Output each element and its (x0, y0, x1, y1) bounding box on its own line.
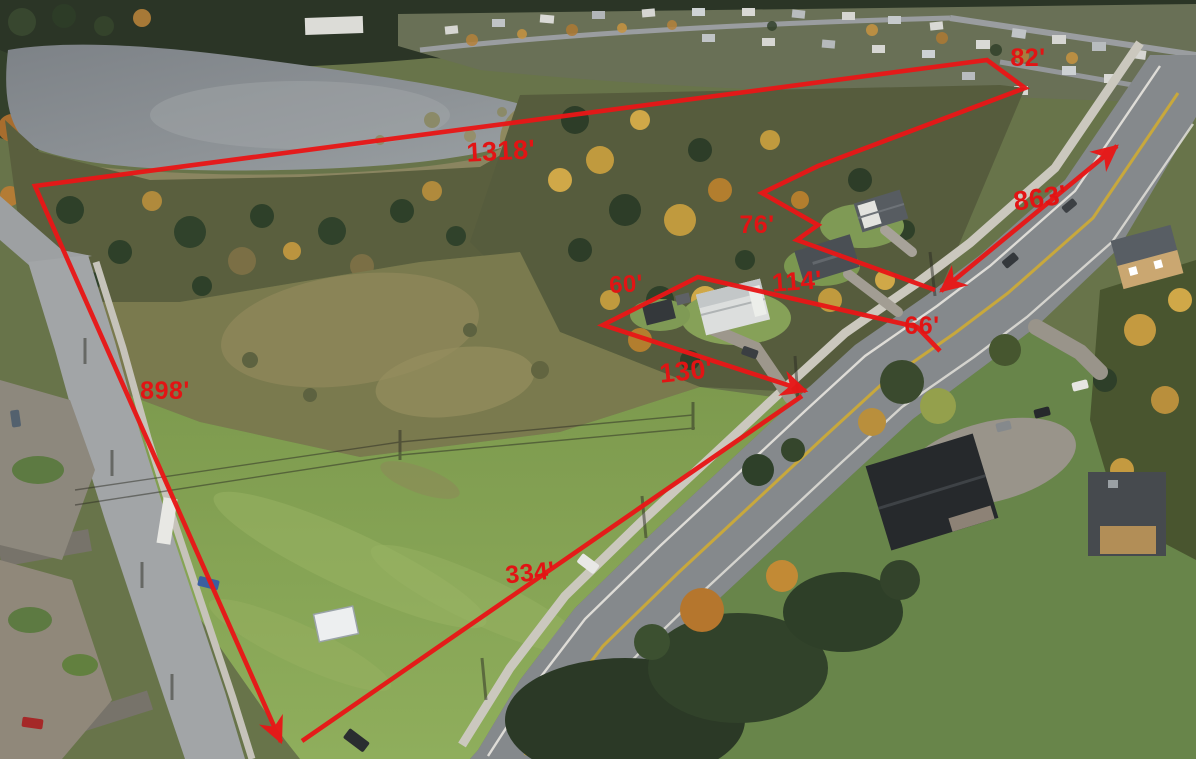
label-82: 82' (1010, 44, 1045, 72)
label-1318: 1318' (466, 134, 536, 168)
garage-building (1088, 472, 1166, 556)
warehouse-building (305, 16, 364, 35)
label-60: 60' (608, 270, 644, 299)
label-66: 66' (904, 312, 939, 340)
label-898: 898' (140, 377, 190, 405)
aerial-property-photo: 1318' 82' 898' 76' 114' 66' 60' 130' 334… (0, 0, 1196, 759)
label-130: 130' (658, 353, 714, 388)
label-334: 334' (504, 556, 556, 589)
label-114: 114' (771, 264, 823, 297)
label-76: 76' (739, 211, 774, 239)
photo-canvas: 1318' 82' 898' 76' 114' 66' 60' 130' 334… (0, 0, 1196, 759)
